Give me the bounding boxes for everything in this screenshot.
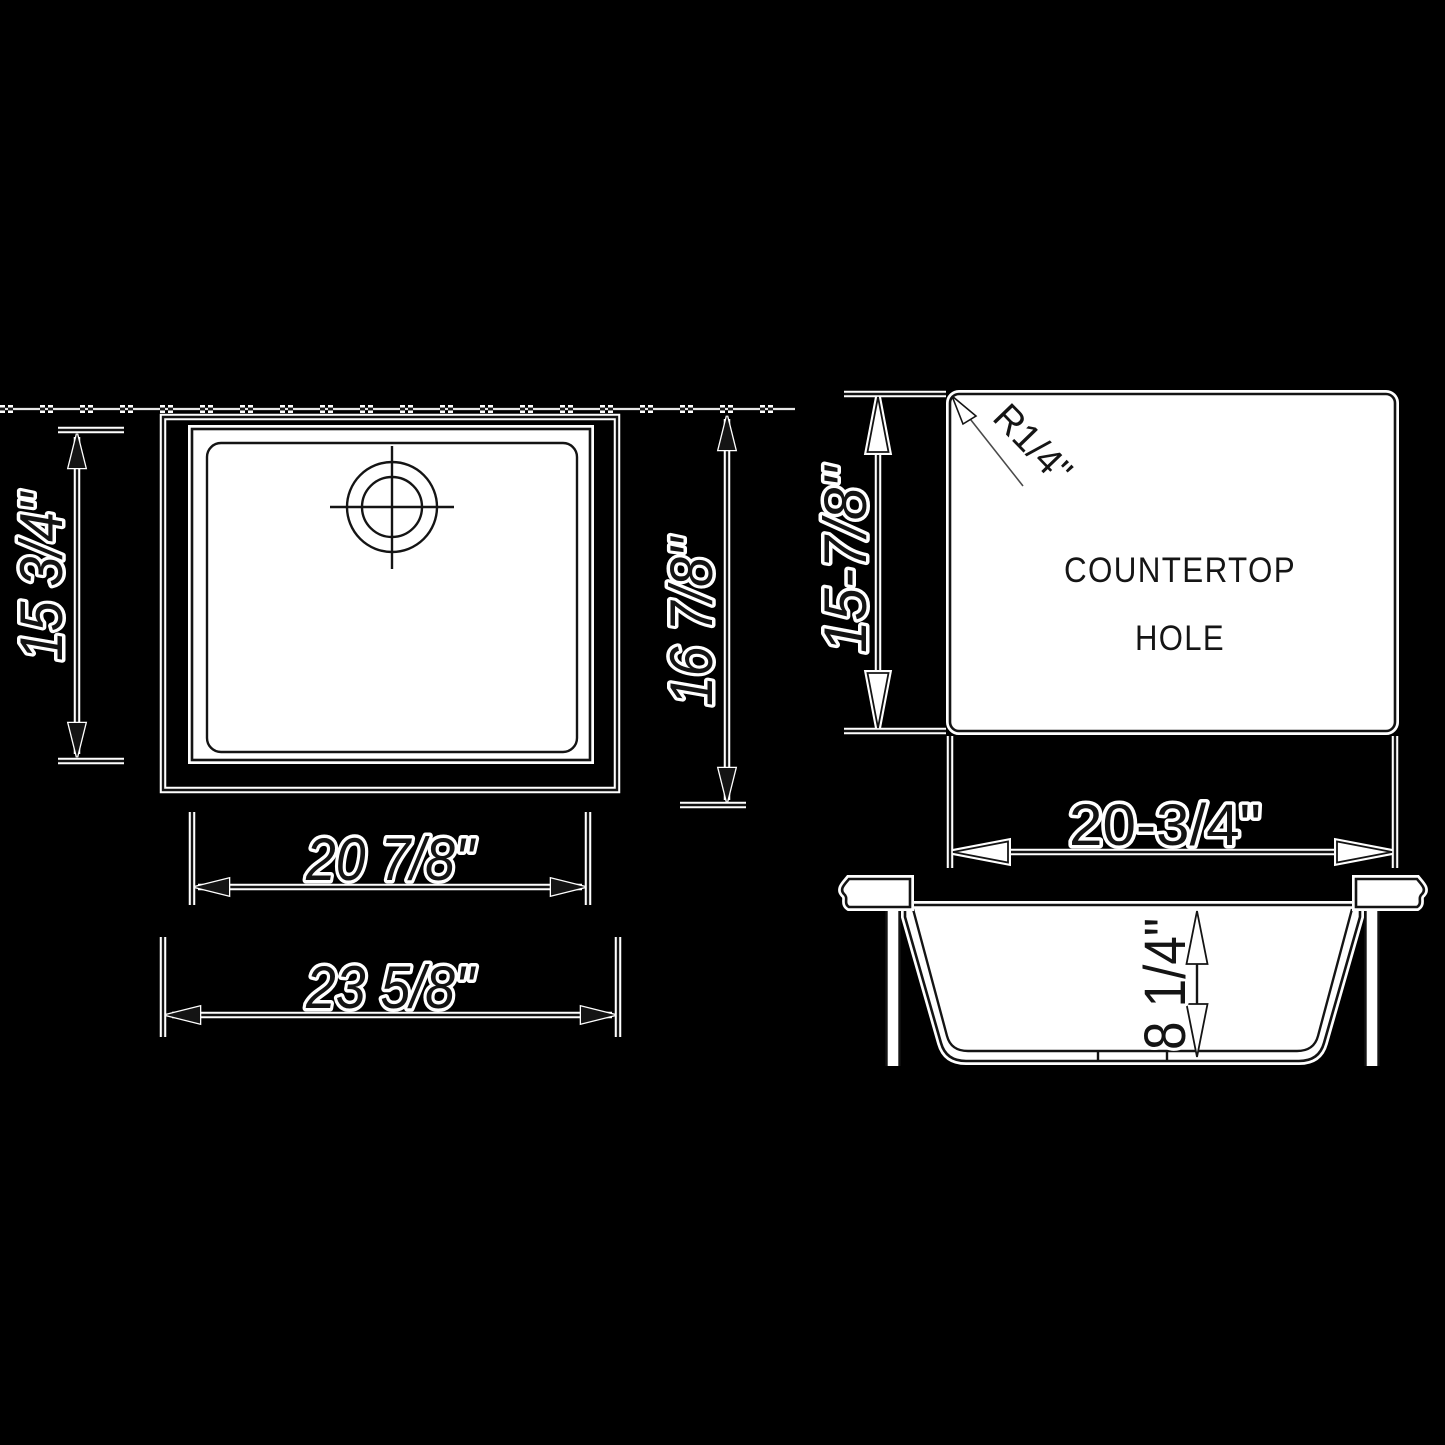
arrow-left-icon	[195, 879, 229, 896]
countertop-hole-view: COUNTERTOP HOLE R1/4" 15-7/8"	[812, 394, 1395, 868]
arrow-up-icon	[69, 434, 86, 468]
dim-rim-width: 20 7/8"	[192, 812, 588, 905]
dim-basin-depth: 8 1/4"	[1133, 911, 1208, 1057]
arrow-right-icon	[1337, 842, 1392, 863]
countertop-hole-label-line2: HOLE	[1135, 619, 1225, 658]
arrow-up-icon	[868, 397, 889, 452]
arrow-down-icon	[69, 723, 86, 757]
dim-label-rim-width: 20 7/8"	[305, 826, 476, 893]
arrow-down-icon	[719, 768, 736, 802]
countertop-hole-label-line1: COUNTERTOP	[1064, 551, 1296, 590]
dim-hole-height: 15-7/8"	[812, 394, 946, 731]
dim-overall-height: 16 7/8"	[658, 416, 746, 805]
mounting-clip-left	[842, 879, 910, 907]
dim-label-hole-height: 15-7/8"	[812, 464, 879, 653]
arrow-right-icon	[581, 1007, 615, 1024]
arrow-left-icon	[166, 1007, 200, 1024]
sink-dimension-drawing: 15 3/4" 16 7/8" 20 7/8" 23 5/8"	[0, 0, 1445, 1445]
section-view: 8 1/4"	[842, 879, 1424, 1066]
arrow-up-icon	[719, 416, 736, 450]
dim-bowl-height: 15 3/4"	[8, 430, 124, 761]
dim-label-overall-height: 16 7/8"	[658, 536, 725, 706]
arrow-down-icon	[868, 673, 889, 728]
arrow-right-icon	[551, 879, 585, 896]
mounting-clip-right	[1356, 879, 1424, 907]
dim-label-hole-width: 20-3/4"	[1069, 793, 1261, 858]
dim-label-bowl-height: 15 3/4"	[8, 491, 75, 661]
top-view: 15 3/4" 16 7/8" 20 7/8" 23 5/8"	[0, 409, 795, 1037]
dim-hole-width: 20-3/4"	[950, 736, 1395, 868]
clip-bolt-left	[887, 906, 900, 1066]
dim-label-basin-depth: 8 1/4"	[1133, 918, 1198, 1050]
arrow-left-icon	[953, 842, 1008, 863]
dim-overall-width: 23 5/8"	[163, 937, 618, 1037]
clip-bolt-right	[1366, 906, 1379, 1066]
drawing-canvas: 15 3/4" 16 7/8" 20 7/8" 23 5/8"	[0, 0, 1445, 1445]
dim-label-overall-width: 23 5/8"	[305, 954, 476, 1021]
